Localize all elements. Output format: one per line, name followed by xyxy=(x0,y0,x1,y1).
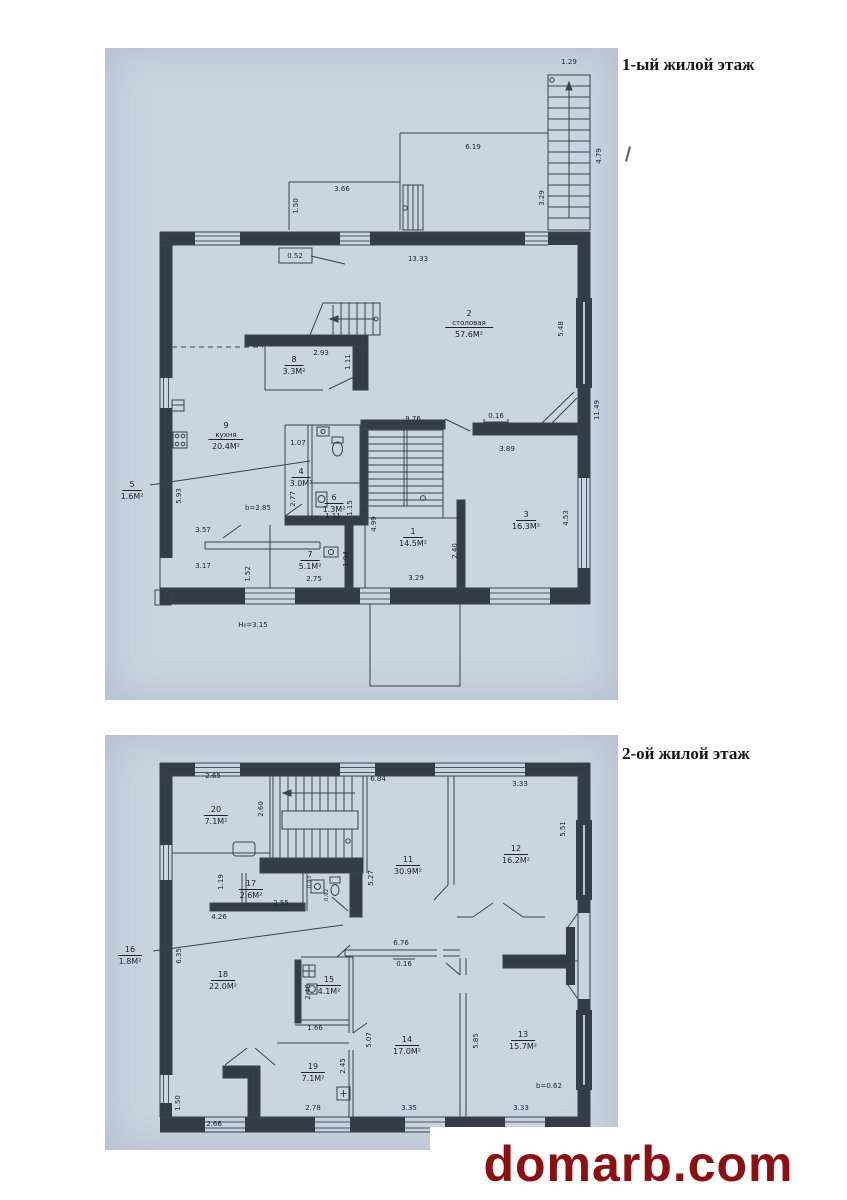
room-number: 2 xyxy=(452,309,486,319)
room-label-12: 12 16.2М² xyxy=(502,836,530,866)
room-label-20: 20 7.1М² xyxy=(204,797,228,827)
ceiling-height-note: Н₀=3.15 xyxy=(238,621,268,629)
dim-label: 9.76 xyxy=(405,415,421,423)
floor1-plan-panel: 1.29 4.79 3.29 6.19 3.66 1.50 0.52 13.33… xyxy=(105,48,618,700)
dim-label: 5.07 xyxy=(365,1032,373,1048)
room-number: 18 xyxy=(218,970,228,980)
dim-label: 1.52 xyxy=(244,566,252,582)
toilet-icon xyxy=(330,877,340,896)
interior-walls xyxy=(150,303,578,686)
room-number: 15 xyxy=(324,975,334,985)
dim-label: 1.07 xyxy=(290,439,306,447)
dim-label: 6.35 xyxy=(175,948,183,964)
dim-label: 2.65 xyxy=(205,772,221,780)
room-label-6: 6 1.3М² xyxy=(323,485,346,515)
dim-label: 3.29 xyxy=(538,190,546,206)
room-number: 1 xyxy=(410,527,415,537)
dim-label: 0.16 xyxy=(488,412,504,420)
dim-label: 2.46 xyxy=(304,984,312,1000)
dim-label: 6.84 xyxy=(370,775,386,783)
dim-label: 3.33 xyxy=(513,1104,529,1112)
room-label-3: 3 16.3М² xyxy=(512,502,540,532)
dim-label: 1.19 xyxy=(217,874,225,890)
room-label-18: 18 22.0М² xyxy=(209,962,237,992)
dim-label: 1.50 xyxy=(292,198,300,214)
pen-mark xyxy=(625,146,631,162)
room-label-14: 14 17.0М² xyxy=(393,1027,421,1057)
room-number: 5 xyxy=(129,480,134,490)
electric-panel-icon xyxy=(337,1087,350,1100)
dim-label: 5.93 xyxy=(175,488,183,504)
dim-label: 2.40 xyxy=(451,543,459,559)
room-number: 3 xyxy=(523,510,528,520)
washbasin-icon xyxy=(324,547,338,557)
dim-label: 13.33 xyxy=(408,255,428,263)
dim-label: 2.78 xyxy=(305,1104,321,1112)
room-area: 1.6М² xyxy=(121,491,144,502)
interior-walls xyxy=(153,776,578,1118)
dim-label: 3.17 xyxy=(195,562,211,570)
room-number: 14 xyxy=(402,1035,412,1045)
dim-label: 2.77 xyxy=(289,491,297,507)
room-label-13: 13 15.7М² xyxy=(509,1022,537,1052)
room-area: 2.6М² xyxy=(239,890,263,901)
dim-label: 4.79 xyxy=(595,148,603,164)
dim-label: 3.66 xyxy=(334,185,350,193)
exterior-staircase xyxy=(548,75,590,230)
room-name: столовая xyxy=(452,319,486,327)
toilet-icon xyxy=(332,437,343,456)
room-number: 4 xyxy=(298,467,303,477)
room-number: 12 xyxy=(511,844,521,854)
room-area: 5.1М² xyxy=(299,561,322,572)
room-number: 9 xyxy=(215,421,236,431)
dim-label: 1.11 xyxy=(344,354,352,370)
room-area: 17.0М² xyxy=(393,1046,421,1057)
floor2-title: 2-ой жилой этаж xyxy=(622,744,750,764)
room-label-19: 19 7.1М² xyxy=(301,1054,325,1084)
room-area: 14.5М² xyxy=(399,538,427,549)
dim-label: 0.52 xyxy=(287,252,303,260)
dim-label: 2.93 xyxy=(313,349,329,357)
dim-label: 3.89 xyxy=(499,445,515,453)
dim-label: 4.99 xyxy=(370,516,378,532)
dim-label: 1.29 xyxy=(561,58,577,66)
room-number: 19 xyxy=(308,1062,318,1072)
dim-label: 3.33 xyxy=(512,780,528,788)
dim-label: 1.66 xyxy=(307,1024,323,1032)
floor2-plan-panel: 2.65 2.60 6.84 3.33 5.51 1.19 2.55 4.26 … xyxy=(105,735,618,1150)
room-number: 11 xyxy=(403,855,413,865)
room-area: 15.7М² xyxy=(509,1041,537,1052)
room-label-2: 2 столовая 57.6М² xyxy=(445,309,493,339)
dim-label: 5.48 xyxy=(557,321,565,337)
floor1-title: 1-ый жилой этаж xyxy=(622,55,754,75)
room-label-11: 11 30.9М² xyxy=(394,847,422,877)
stove-icon xyxy=(173,432,187,448)
windows xyxy=(164,236,587,599)
room-area: 4.1М² xyxy=(317,986,341,997)
room-number: 6 xyxy=(331,493,336,503)
dim-label: 3.35 xyxy=(401,1104,417,1112)
room-label-7: 7 5.1М² xyxy=(299,542,322,572)
dim-label: 3.57 xyxy=(195,526,211,534)
dim-label: 0.16 xyxy=(396,960,412,968)
dim-label: b=2.85 xyxy=(245,504,271,512)
dim-label: 1.50 xyxy=(174,1095,182,1111)
watermark-strip: domarb.com xyxy=(430,1127,847,1200)
room-label-15: 15 4.1М² xyxy=(317,967,341,997)
room-label-17: 17 2.6М² xyxy=(239,871,263,901)
dim-label: 2.45 xyxy=(339,1058,347,1074)
room-area: 20.4М² xyxy=(208,441,243,452)
room-area: 3.0М² xyxy=(290,478,313,489)
room-area: 22.0М² xyxy=(209,981,237,992)
room-number: 8 xyxy=(291,355,296,365)
counter-icon xyxy=(172,400,184,411)
room-number: 13 xyxy=(518,1030,528,1040)
room-area: 3.3М² xyxy=(283,366,306,377)
room-area: 7.1М² xyxy=(204,816,228,827)
room-area: 57.6М² xyxy=(445,329,493,340)
room-number: 17 xyxy=(246,879,256,889)
room-area: 1.3М² xyxy=(323,504,346,515)
dim-label: 4.53 xyxy=(562,510,570,526)
dim-label: 6.76 xyxy=(393,939,409,947)
staircase xyxy=(260,776,367,873)
room-number: 7 xyxy=(307,550,312,560)
room-area: 7.1М² xyxy=(301,1073,325,1084)
watermark-text: domarb.com xyxy=(483,1135,793,1193)
dim-label: 0.92 xyxy=(324,889,330,901)
floor1-plan-drawing xyxy=(105,48,618,700)
room-label-5: 5 1.6М² xyxy=(121,472,144,502)
room-area: 30.9М² xyxy=(394,866,422,877)
dim-label: 1.94 xyxy=(342,551,350,567)
room-label-1: 1 14.5М² xyxy=(399,519,427,549)
dim-label: 2.66 xyxy=(206,1120,222,1128)
room-label-16: 16 1.8М² xyxy=(118,937,142,967)
dim-label: 11.49 xyxy=(593,400,601,420)
dim-label: 2.60 xyxy=(257,801,265,817)
dim-label: 1.15 xyxy=(346,500,354,516)
dim-label: 6.19 xyxy=(465,143,481,151)
dim-label: 5.27 xyxy=(367,870,375,886)
room-area: 16.2М² xyxy=(502,855,530,866)
room-number: 16 xyxy=(125,945,135,955)
room-area: 1.8М² xyxy=(118,956,142,967)
dim-label: 5.85 xyxy=(472,1033,480,1049)
sink-icon xyxy=(317,427,329,436)
room-number: 20 xyxy=(211,805,221,815)
dim-label: b=0.62 xyxy=(536,1082,562,1090)
room-name: кухня xyxy=(215,431,236,439)
room-label-4: 4 3.0М² xyxy=(290,459,313,489)
dim-label: 2.75 xyxy=(306,575,322,583)
outer-walls xyxy=(160,232,592,604)
dim-label: 5.51 xyxy=(559,821,567,837)
room-label-9: 9 кухня 20.4М² xyxy=(208,421,243,451)
boiler-icon xyxy=(303,965,315,977)
room-area: 16.3М² xyxy=(512,521,540,532)
dim-label: 0.93 xyxy=(307,876,313,888)
room-label-8: 8 3.3М² xyxy=(283,347,306,377)
dim-label: 4.26 xyxy=(211,913,227,921)
dim-label: 3.29 xyxy=(408,574,424,582)
dim-label: 2.55 xyxy=(273,899,289,907)
